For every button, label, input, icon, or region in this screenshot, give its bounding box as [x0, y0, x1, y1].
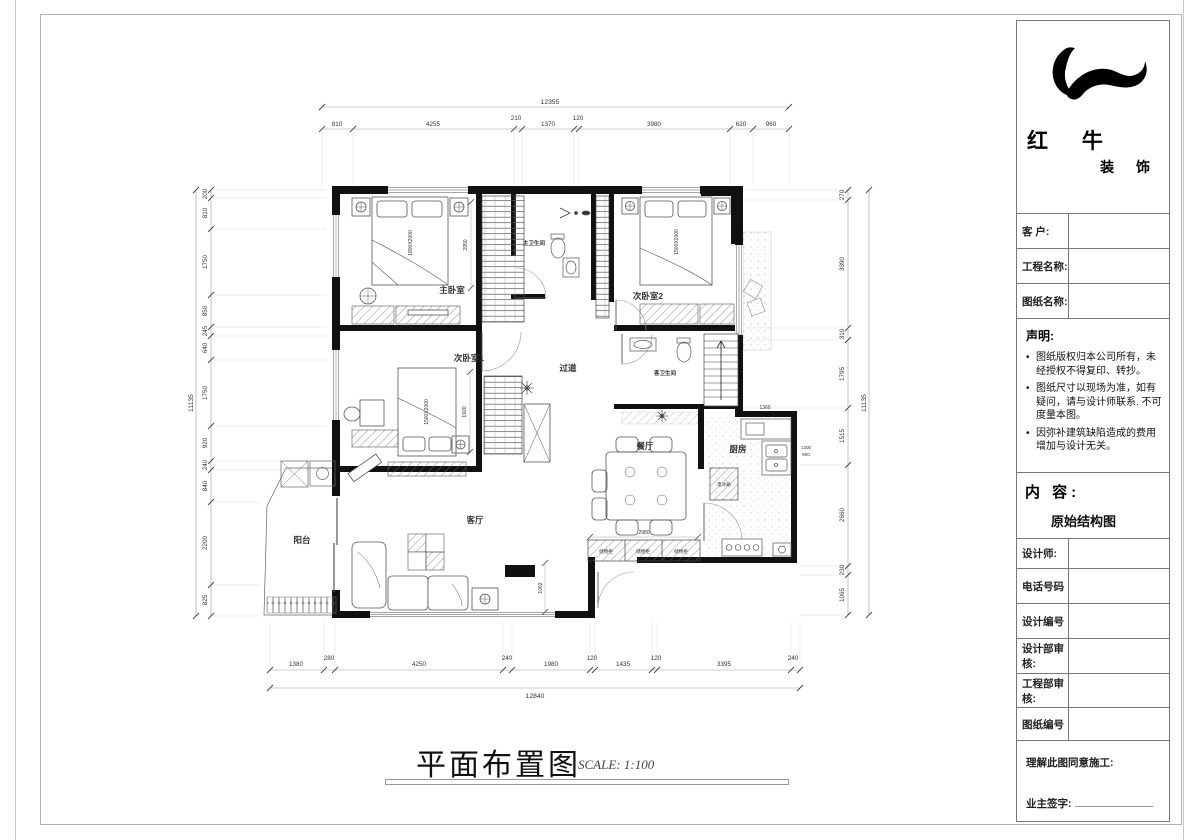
dim-right-3: 1795	[839, 367, 846, 382]
agree-text: 理解此图同意施工:	[1026, 755, 1161, 770]
shelf-strip	[596, 196, 609, 318]
dim-bottom-1: 280	[324, 655, 335, 662]
field-drawing: 图纸名称:	[1017, 284, 1169, 319]
drawing-scale: SCALE: 1:100	[578, 757, 654, 773]
signature-line[interactable]	[1075, 796, 1153, 807]
statement-item: • 图纸版权归本公司所有，未经授权不得复印、转抄。	[1026, 351, 1162, 378]
dim-bottom-5: 120	[587, 655, 598, 662]
guest-bathroom-fixtures	[630, 334, 738, 406]
balcony-railing	[267, 597, 336, 613]
dim-right-1: 3390	[839, 257, 846, 272]
cabinet	[700, 304, 734, 324]
dining-furniture	[588, 437, 700, 561]
stove	[722, 539, 762, 556]
field-design-review: 设计部审核:	[1017, 639, 1169, 674]
dim-left-5: 640	[202, 342, 209, 353]
content-value: 原始结构图	[1051, 511, 1163, 530]
client-label: 客 户:	[1017, 214, 1069, 248]
design-no-value[interactable]	[1069, 604, 1169, 638]
sign-row: 业主签字:	[1026, 796, 1161, 811]
master-bathroom-fixtures	[551, 196, 609, 318]
dim-left-total: 11135	[188, 394, 195, 412]
door-balcony-slider	[334, 498, 337, 592]
title-underline-bar	[385, 779, 789, 785]
dim-bottom-6: 1435	[616, 661, 631, 668]
dim-labels-top: 12355 810 4255 210 1370 120 3980 620 960	[332, 99, 777, 128]
dim-left-9: 840	[202, 480, 209, 491]
dim-top-2: 210	[511, 115, 522, 122]
dim-bottom-7: 120	[651, 655, 662, 662]
sign-label: 业主签字:	[1026, 798, 1072, 810]
dim-inner-900: 900	[802, 452, 810, 457]
window-master-left	[332, 215, 340, 277]
dim-top-3: 1370	[541, 121, 556, 128]
dim-left-1: 810	[202, 207, 209, 218]
dim-bottom-4: 1980	[544, 661, 559, 668]
client-value[interactable]	[1069, 214, 1169, 248]
dim-top-1: 4255	[426, 121, 441, 128]
statement-heading: 声明:	[1026, 327, 1162, 344]
cabinet	[352, 306, 394, 324]
dim-inner-2980: 2980	[638, 530, 649, 536]
dim-top-0: 810	[332, 121, 343, 128]
designer-label: 设计师:	[1017, 539, 1069, 568]
statement-text: 图纸版权归本公司所有，未经授权不得复印、转抄。	[1036, 351, 1162, 378]
window-bed2-top	[642, 186, 700, 194]
project-value[interactable]	[1069, 249, 1169, 283]
drawing-value[interactable]	[1069, 284, 1169, 318]
dim-chain-left	[193, 187, 326, 619]
room-label-kitchen: 厨房	[729, 444, 746, 454]
content-heading: 内 容:	[1025, 481, 1163, 502]
desk	[360, 400, 384, 426]
content-cell: 内 容: 原始结构图	[1017, 473, 1169, 539]
dim-top-total: 12355	[541, 99, 560, 106]
bullet-icon: •	[1026, 351, 1036, 378]
bullet-icon: •	[1026, 427, 1036, 454]
room-label-master-bedroom: 主卧室	[439, 285, 465, 295]
dim-top-5: 3980	[647, 121, 662, 128]
dim-top-6: 620	[736, 121, 747, 128]
window-master-top	[388, 186, 468, 194]
field-sheet-no: 图纸编号	[1017, 708, 1169, 741]
plant-icon	[520, 381, 534, 395]
master-bedroom-furniture	[352, 196, 524, 324]
dim-right-total: 11135	[861, 394, 868, 412]
field-design-no: 设计编号	[1017, 604, 1169, 639]
statement-item: • 图纸尺寸以现场为准，如有疑问，请与设计师联系. 不可度量本图。	[1026, 382, 1162, 423]
room-label-balcony: 阳台	[293, 535, 311, 545]
fridge-label: 电冰箱	[717, 481, 731, 488]
designer-value[interactable]	[1069, 539, 1169, 568]
field-designer: 设计师:	[1017, 539, 1169, 569]
room-label-dining: 餐厅	[635, 441, 654, 451]
balcony-sink	[310, 461, 335, 486]
closet	[484, 376, 522, 454]
dim-right-0: 270	[839, 189, 846, 200]
dim-labels-bottom: 12840 1380 280 4250 240 1980 120 1435 12…	[289, 655, 799, 700]
tv	[408, 310, 448, 315]
dim-left-8: 240	[202, 459, 209, 470]
vent-icon	[560, 208, 570, 218]
window-bed1-left	[332, 350, 340, 420]
title-block: 红 牛 装 饰 客 户: 工程名称: 图纸名称: 声明: • 图纸版权归本公司所…	[1016, 20, 1170, 822]
floor-plan: 12355 810 4255 210 1370 120 3980 620 960…	[40, 14, 1015, 826]
living-room-furniture	[348, 454, 498, 610]
door-entry	[598, 572, 634, 608]
wardrobe	[482, 196, 524, 322]
storage-label: 储物柜	[674, 548, 688, 555]
rug	[408, 534, 444, 570]
eng-review-label: 工程部审核:	[1017, 674, 1069, 707]
desk	[640, 304, 698, 324]
field-project: 工程名称:	[1017, 249, 1169, 284]
dim-top-4: 120	[573, 115, 584, 122]
dim-left-3: 850	[202, 305, 209, 316]
room-label-bedroom1: 次卧室1	[454, 353, 485, 363]
dim-left-4: 245	[202, 325, 209, 336]
dim-right-6: 230	[839, 564, 846, 575]
project-label: 工程名称:	[1017, 249, 1069, 283]
statement-text: 因弥补建筑缺陷造成的费用增加与设计无关。	[1036, 427, 1162, 454]
dim-top-7: 960	[766, 121, 777, 128]
chair	[344, 407, 360, 421]
phone-value[interactable]	[1069, 569, 1169, 603]
storage-label: 储物柜	[599, 548, 613, 555]
dim-labels-left: 11135 200 810 1750 850 245 640 1750 920 …	[188, 188, 209, 605]
brand-cell: 红 牛 装 饰	[1017, 21, 1169, 214]
dim-left-2: 1750	[202, 255, 209, 270]
field-eng-review: 工程部审核:	[1017, 674, 1169, 708]
bedroom1-furniture	[344, 368, 550, 462]
drawing-sheet-title: 平面布置图	[416, 740, 581, 784]
dim-inner-1360: 1360	[759, 405, 770, 411]
room-label-bedroom2: 次卧室2	[633, 291, 664, 301]
dim-bottom-total: 12840	[526, 693, 545, 700]
window-bed2-right	[735, 245, 743, 335]
brand-name: 红 牛	[1027, 125, 1117, 155]
dim-inner-1920: 1920	[462, 406, 468, 417]
phone-label: 电话号码	[1017, 569, 1069, 603]
logo-wave	[1063, 57, 1151, 102]
dim-bottom-0: 1380	[289, 661, 304, 668]
sheet-no-value[interactable]	[1069, 708, 1169, 740]
statement-text: 图纸尺寸以现场为准，如有疑问，请与设计师联系. 不可度量本图。	[1036, 382, 1162, 423]
statement-cell: 声明: • 图纸版权归本公司所有，未经授权不得复印、转抄。 • 图纸尺寸以现场为…	[1017, 319, 1169, 473]
brand-logo	[1034, 35, 1152, 121]
dim-inner-1062: 1062	[538, 582, 544, 593]
dim-left-7: 920	[202, 437, 209, 448]
door-bedroom1	[482, 332, 521, 371]
field-client: 客 户:	[1017, 214, 1169, 249]
dim-left-6: 1750	[202, 386, 209, 401]
dim-right-2: 310	[839, 328, 846, 339]
dim-bottom-2: 4250	[412, 661, 427, 668]
drawing-sheet: 12355 810 4255 210 1370 120 3980 620 960…	[0, 0, 1200, 840]
bed-size-bed2: 1500X2000	[674, 229, 680, 255]
dim-right-7: 1065	[839, 588, 846, 603]
dim-inner-1300: 1300	[801, 445, 812, 450]
tv-cabinet	[388, 462, 466, 476]
dim-bottom-8: 3395	[717, 661, 732, 668]
dim-chain-top	[319, 104, 792, 186]
brand-subname: 装 饰	[1100, 157, 1159, 177]
design-review-value[interactable]	[1069, 639, 1169, 673]
dim-left-11: 825	[202, 594, 209, 605]
dim-chain-bottom	[267, 622, 803, 691]
dim-inner-2950: 2950	[463, 239, 469, 250]
design-no-label: 设计编号	[1017, 604, 1069, 638]
balcony-right	[743, 232, 771, 350]
storage-label: 储物柜	[636, 548, 650, 555]
field-phone: 电话号码	[1017, 569, 1169, 604]
dim-labels-right: 11135 270 3390 310 1795 1515 2660 230 10…	[839, 189, 868, 602]
dim-right-4: 1515	[839, 429, 846, 444]
room-label-master-bath: 主卫生间	[523, 239, 546, 247]
bedroom2-furniture	[622, 197, 734, 324]
washing-machine	[281, 461, 308, 487]
signature-cell: 理解此图同意施工: 业主签字:	[1017, 741, 1169, 821]
stairs	[704, 334, 738, 406]
bed-size-master: 1800X2000	[408, 230, 414, 256]
bullet-icon: •	[1026, 382, 1036, 423]
door-guest-bath	[622, 334, 652, 364]
dim-left-0: 200	[202, 188, 209, 199]
eng-review-value[interactable]	[1069, 674, 1169, 707]
sheet-no-label: 图纸编号	[1017, 708, 1069, 740]
dim-bottom-9: 240	[788, 655, 799, 662]
design-review-label: 设计部审核:	[1017, 639, 1069, 673]
bed-size-bed1: 1500X2000	[424, 399, 430, 425]
outer-frame-right	[1183, 0, 1184, 840]
dim-left-10: 2200	[202, 536, 209, 551]
room-label-guest-bath: 客卫生间	[653, 369, 677, 377]
dim-bottom-3: 240	[502, 655, 513, 662]
room-label-living: 客厅	[465, 515, 484, 525]
room-label-hallway: 过道	[559, 363, 577, 373]
window-living-bottom	[370, 611, 555, 618]
dim-right-5: 2660	[839, 508, 846, 523]
outer-frame-left	[15, 0, 16, 840]
statement-item: • 因弥补建筑缺陷造成的费用增加与设计无关。	[1026, 427, 1162, 454]
drawing-label: 图纸名称:	[1017, 284, 1069, 318]
cabinet	[352, 430, 398, 447]
